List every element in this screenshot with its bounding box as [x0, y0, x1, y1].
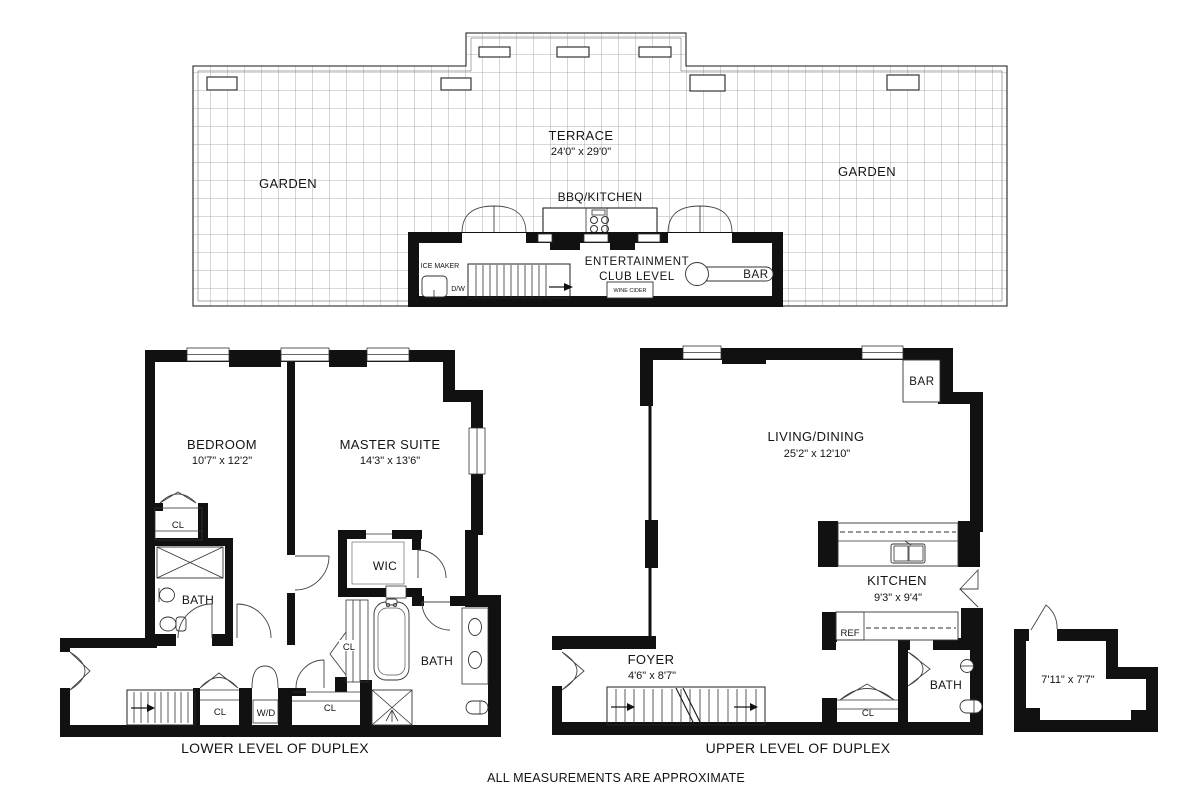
upper-toilet-icon: [960, 700, 982, 713]
living-dining-label: LIVING/DINING: [768, 429, 865, 444]
foyer-label: FOYER: [628, 652, 675, 667]
upper-stairs: [607, 687, 765, 725]
upper-closet: [837, 684, 898, 709]
master-toilet-icon: [466, 701, 488, 714]
bedroom-label: BEDROOM: [187, 437, 257, 452]
upper-bath-label: BATH: [930, 678, 962, 692]
upper-closet-label: CL: [862, 708, 874, 719]
garden-left-label: GARDEN: [259, 176, 317, 191]
bbq-kitchen-label: BBQ/KITCHEN: [558, 190, 643, 204]
terrace-dims: 24'0" x 29'0": [551, 146, 611, 158]
storage-room-plan: 7'11" x 7'7": [1014, 605, 1158, 732]
dishwasher-label: D/W: [451, 286, 465, 293]
kitchen-island: [838, 523, 958, 566]
floorplan-svg: TERRACE 24'0" x 29'0" GARDEN GARDEN BBQ/…: [0, 0, 1200, 799]
storage-door-icon: [1031, 605, 1057, 630]
wic-label: WIC: [373, 559, 397, 573]
master-suite-label: MASTER SUITE: [340, 437, 441, 452]
storage-dims: 7'11" x 7'7": [1041, 674, 1094, 686]
master-shower-icon: [372, 690, 412, 725]
bedroom-shower-icon: [157, 547, 223, 578]
terrace-label: TERRACE: [549, 128, 614, 143]
hall-closet-2-label: CL: [324, 703, 336, 714]
master-bath-door-icon: [422, 602, 450, 630]
bbq-counter: [543, 208, 657, 233]
bedroom-bath-sink-icon: [159, 588, 175, 602]
entertainment-label-line2: CLUB LEVEL: [599, 271, 675, 283]
kitchen-label: KITCHEN: [867, 573, 927, 588]
club-bar-label: BAR: [743, 269, 768, 281]
hall-closet-1: [200, 673, 239, 700]
kitchen-fold-door-icon: [960, 570, 978, 607]
upper-bar-label: BAR: [909, 376, 934, 388]
kitchen-dims: 9'3" x 9'4": [874, 592, 922, 604]
garden-right-label: GARDEN: [838, 164, 896, 179]
floorplan-page: TERRACE 24'0" x 29'0" GARDEN GARDEN BBQ/…: [0, 0, 1200, 799]
upper-bath-door-icon: [908, 652, 930, 686]
lower-level-windows: [60, 348, 485, 688]
washer-dryer-label: W/D: [257, 708, 276, 719]
upper-level-caption: UPPER LEVEL OF DUPLEX: [706, 740, 891, 756]
ice-maker-label: ICE MAKER: [421, 263, 460, 270]
living-dining-dims: 25'2" x 12'10": [784, 448, 851, 460]
lower-stairs: [127, 690, 195, 725]
fridge-label: REF: [841, 628, 860, 639]
lower-level-walls: [60, 350, 501, 737]
entertainment-label-line1: ENTERTAINMENT: [585, 256, 690, 268]
ice-maker-icon: [422, 276, 447, 297]
bedroom-closet: [155, 492, 202, 540]
master-bath-sinks-icon: [462, 608, 488, 684]
bedroom-dims: 10'7" x 12'2": [192, 455, 252, 467]
bedroom-bath-label: BATH: [182, 593, 214, 607]
hall-closet-1-label: CL: [214, 707, 226, 718]
master-hall-door-icon: [295, 556, 329, 590]
master-bath-label: BATH: [421, 654, 453, 668]
wic-room: [352, 542, 446, 584]
wine-cider-label: WINE CIDER: [614, 288, 647, 294]
terrace-club-level-plan: TERRACE 24'0" x 29'0" GARDEN GARDEN BBQ/…: [193, 33, 1007, 307]
master-tub-icon: [374, 599, 409, 680]
bedroom-closet-label: CL: [172, 520, 184, 531]
linen-closet: [330, 600, 368, 682]
lower-level-caption: LOWER LEVEL OF DUPLEX: [181, 740, 369, 756]
storage-door-gap: [1029, 629, 1057, 641]
bedroom-toilet-icon: [160, 617, 186, 631]
corridor-door-icon: [237, 604, 271, 638]
measurements-note: ALL MEASUREMENTS ARE APPROXIMATE: [487, 771, 745, 785]
foyer-dims: 4'6" x 8'7": [628, 670, 676, 682]
upper-bath-sink-icon: [960, 660, 974, 673]
lower-entry-door-icon: [70, 652, 90, 690]
upper-entry-door-icon: [562, 652, 584, 690]
master-suite-dims: 14'3" x 13'6": [360, 455, 420, 467]
linen-closet-label: CL: [343, 642, 355, 653]
lower-level-plan: BEDROOM 10'7" x 12'2" MASTER SUITE 14'3"…: [60, 348, 501, 756]
upper-level-plan: BAR LIVING/DINING 25'2" x 12'10" KITCHEN…: [552, 346, 983, 756]
